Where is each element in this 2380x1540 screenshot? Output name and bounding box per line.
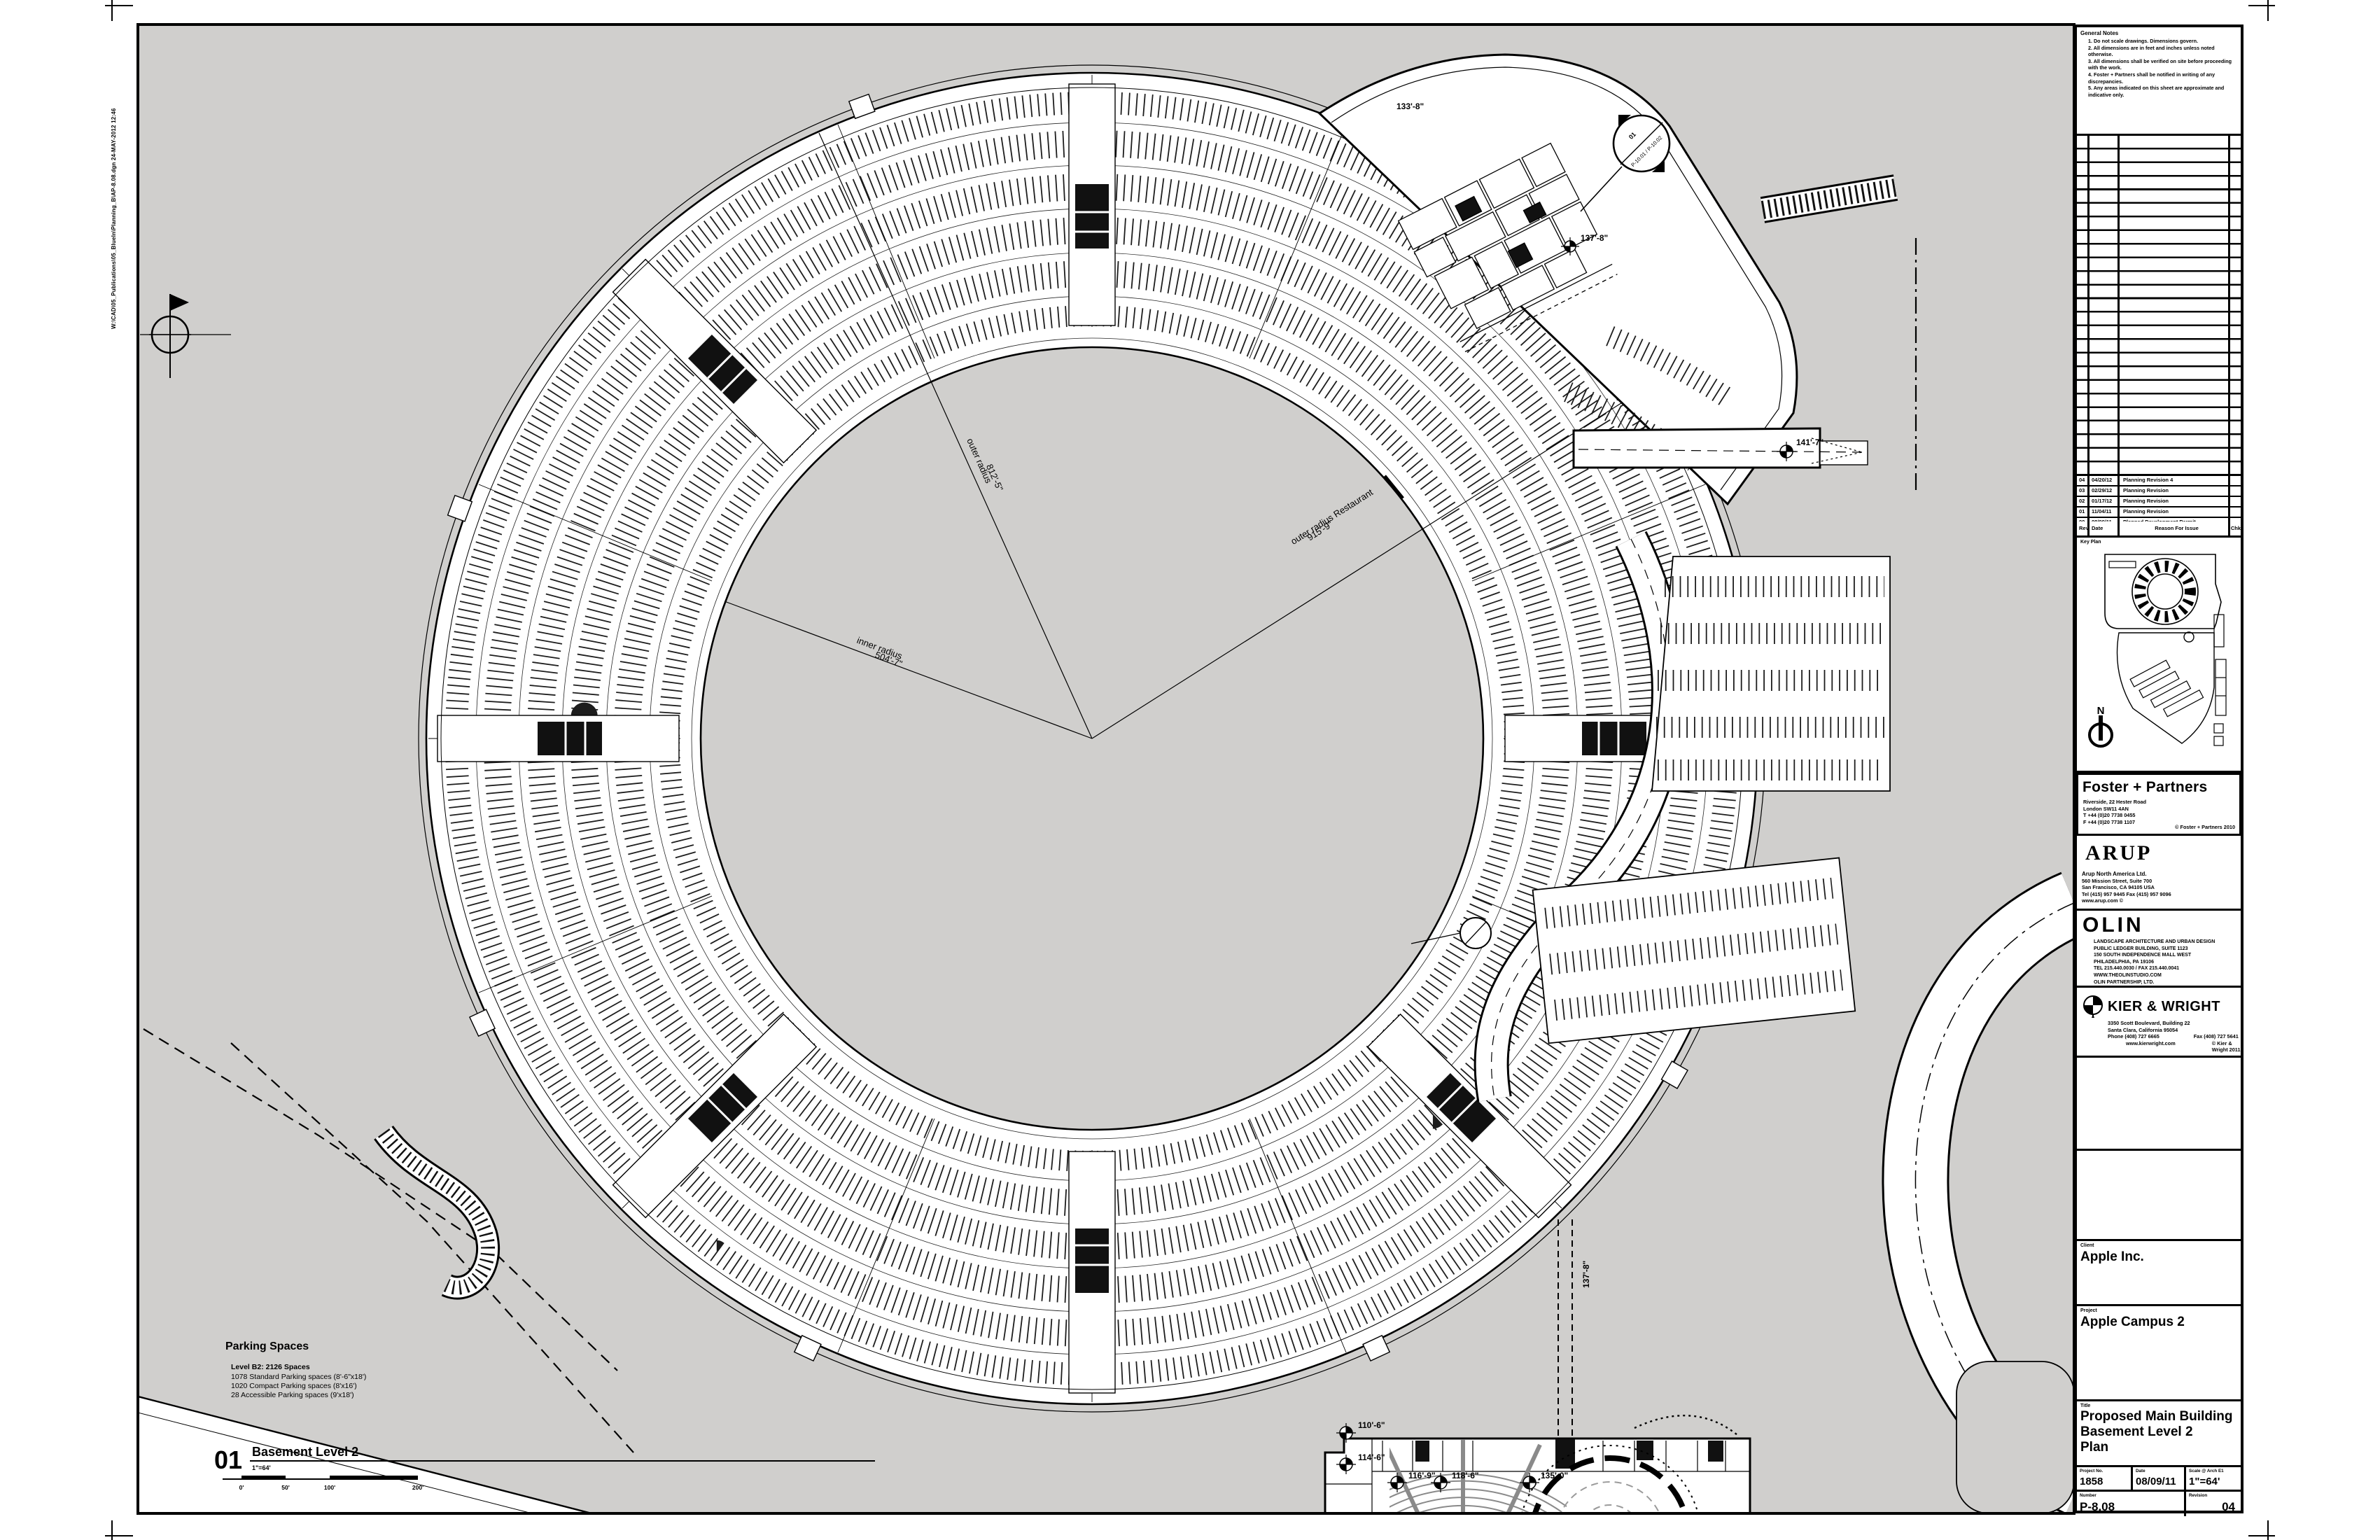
consultant-slot-empty — [2077, 1058, 2241, 1151]
date-label: Date — [2136, 1469, 2145, 1473]
kier-wright-logo-icon — [2081, 995, 2105, 1018]
svg-text:N: N — [2097, 705, 2105, 717]
note-item: 2. All dimensions are in feet and inches… — [2088, 45, 2238, 58]
drawing-sheet: outer radius 812'-5" inner radius 504'-7… — [0, 0, 2380, 1540]
dim-wedge-mid: 137'-8" — [1581, 233, 1608, 243]
sheet-meta-row: Project No. 1858 Date 08/09/11 Scale @ A… — [2077, 1467, 2241, 1492]
project-name: Apple Campus 2 — [2080, 1315, 2185, 1330]
revision-row: 0302/29/12Planning Revision — [2077, 486, 2241, 497]
project-label: Project — [2080, 1308, 2097, 1313]
sheet-title-line: Plan — [2080, 1440, 2232, 1455]
arup-logo: ARUP — [2085, 841, 2241, 865]
note-item: 4. Foster + Partners shall be notified i… — [2088, 71, 2238, 85]
foster-logo: Foster + Partners — [2082, 779, 2239, 796]
plot-stamp: W:\CAD\05_Publications\05_BlueIn\Plannin… — [111, 35, 117, 329]
firm-foster-partners: Foster + Partners Riverside, 22 Hester R… — [2076, 773, 2241, 836]
sheet-title-section: Title Proposed Main Building Basement Le… — [2077, 1401, 2241, 1467]
sheet-title-line: Basement Level 2 — [2080, 1424, 2232, 1440]
revision-blank-rows — [2077, 136, 2241, 476]
viewport-name: Basement Level 2 — [252, 1445, 358, 1459]
sheet-number-row: Number P-8.08 Revision 04 — [2077, 1492, 2241, 1516]
legend-title: Parking Spaces — [225, 1340, 309, 1352]
note-item: 1. Do not scale drawings. Dimensions gov… — [2088, 38, 2238, 45]
rev-header-date: Date — [2089, 521, 2120, 536]
sheet-title-line: Proposed Main Building — [2080, 1409, 2232, 1424]
dim-bldg-5: 135'-0" — [1541, 1471, 1568, 1480]
project-no: 1858 — [2080, 1476, 2103, 1487]
client-section: Client Apple Inc. — [2077, 1241, 2241, 1306]
revision-header: Rev. Date Reason For Issue Chk — [2077, 521, 2241, 538]
general-notes: General Notes 1. Do not scale drawings. … — [2077, 27, 2241, 136]
revision-row: 0201/17/12Planning Revision — [2077, 497, 2241, 507]
foster-copyright: © Foster + Partners 2010 — [2175, 824, 2235, 830]
firm-kier-wright: KIER & WRIGHT 3350 Scott Boulevard, Buil… — [2077, 988, 2241, 1058]
revision-table: 0404/20/12Planning Revision 4 0302/29/12… — [2077, 476, 2241, 521]
project-section: Project Apple Campus 2 — [2077, 1306, 2241, 1401]
project-no-label: Project No. — [2080, 1469, 2103, 1473]
key-plan: Key Plan N — [2077, 538, 2241, 773]
svg-text:200': 200' — [412, 1484, 423, 1491]
firm-arup: ARUP Arup North America Ltd. 560 Mission… — [2077, 836, 2241, 911]
client-name: Apple Inc. — [2080, 1249, 2144, 1265]
sheet-number: P-8.08 — [2080, 1500, 2115, 1514]
note-item: 5. Any areas indicated on this sheet are… — [2088, 85, 2238, 98]
dim-wedge-top: 133'-8" — [1396, 101, 1424, 111]
revision-row: 0404/20/12Planning Revision 4 — [2077, 476, 2241, 486]
title-block: General Notes 1. Do not scale drawings. … — [2074, 24, 2243, 1513]
firm-olin: OLIN LANDSCAPE ARCHITECTURE AND URBAN DE… — [2077, 911, 2241, 988]
key-plan-map: N — [2077, 547, 2241, 770]
sheet-revision: 04 — [2222, 1500, 2235, 1514]
north-arrow: N — [2089, 705, 2112, 746]
svg-text:1020 Compact Parking spaces (8: 1020 Compact Parking spaces (8'x16') — [231, 1382, 357, 1390]
plan-canvas: outer radius 812'-5" inner radius 504'-7… — [0, 0, 2380, 1540]
svg-text:50': 50' — [281, 1484, 289, 1491]
rev-header-chk: Chk — [2231, 521, 2241, 536]
rev-header-rev: Rev. — [2077, 521, 2089, 536]
dim-bldg-4: 118'-6" — [1452, 1471, 1479, 1480]
viewport-number: 01 — [214, 1445, 242, 1474]
dim-tunnel: 137'-8" — [1581, 1261, 1591, 1288]
svg-text:100': 100' — [324, 1484, 335, 1491]
road-island — [1956, 1361, 2074, 1513]
site-plan: outer radius 812'-5" inner radius 504'-7… — [138, 24, 2079, 1540]
revision-row: 0111/04/11Planning Revision — [2077, 507, 2241, 518]
dim-east-road: 141'-7" — [1796, 437, 1823, 447]
key-plan-label: Key Plan — [2080, 540, 2101, 545]
number-label: Number — [2080, 1493, 2096, 1498]
svg-text:0': 0' — [239, 1484, 244, 1491]
sheet-scale: 1"=64' — [2189, 1476, 2220, 1487]
client-label: Client — [2080, 1243, 2094, 1248]
dim-bldg-1: 110'-6" — [1358, 1420, 1385, 1430]
sheet-date: 08/09/11 — [2136, 1476, 2176, 1487]
svg-text:28 Accessible Parking spaces (: 28 Accessible Parking spaces (9'x18') — [231, 1391, 354, 1399]
consultant-slot-empty — [2077, 1151, 2241, 1241]
svg-text:Level B2: 2126 Spaces: Level B2: 2126 Spaces — [231, 1363, 310, 1371]
revision-label: Revision — [2189, 1493, 2207, 1498]
dim-bldg-2: 114'-6" — [1358, 1452, 1385, 1462]
olin-logo: OLIN — [2082, 913, 2241, 937]
svg-text:1078 Standard Parking spaces (: 1078 Standard Parking spaces (8'-6"x18') — [231, 1373, 366, 1381]
notes-title: General Notes — [2080, 30, 2241, 36]
rev-header-reason: Reason For Issue — [2120, 521, 2231, 536]
scale-label: Scale @ Arch E1 — [2189, 1469, 2224, 1473]
viewport-scale: 1"=64' — [252, 1464, 271, 1471]
kier-wright-name: KIER & WRIGHT — [2108, 999, 2220, 1015]
title-label: Title — [2080, 1403, 2090, 1408]
note-item: 3. All dimensions shall be verified on s… — [2088, 58, 2238, 71]
dim-bldg-3: 116'-9" — [1408, 1471, 1436, 1480]
